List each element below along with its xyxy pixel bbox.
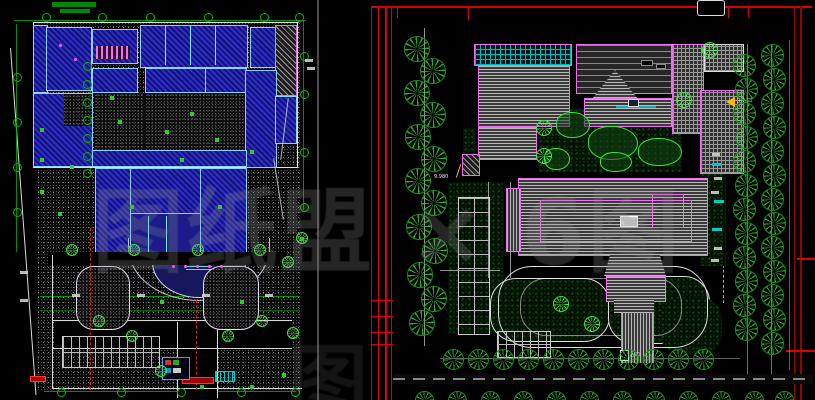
tree-icon bbox=[676, 92, 692, 108]
tree-icon bbox=[763, 212, 786, 235]
tree-icon bbox=[443, 349, 464, 370]
tree-icon bbox=[761, 92, 784, 115]
axis-bubble-icon bbox=[117, 388, 126, 397]
tree-icon bbox=[543, 349, 564, 370]
red-text-chip bbox=[30, 376, 46, 382]
tree-icon bbox=[547, 391, 566, 400]
tree-icon bbox=[405, 124, 431, 150]
tree-icon bbox=[613, 391, 632, 400]
dim-text-chip bbox=[72, 294, 80, 297]
green-annotation-mark bbox=[218, 205, 222, 209]
tree-icon bbox=[553, 296, 569, 312]
tree-icon bbox=[733, 150, 756, 173]
tree-icon bbox=[536, 120, 552, 136]
tree-icon bbox=[668, 349, 689, 370]
axis-bubble-icon bbox=[83, 152, 92, 161]
tree-icon bbox=[421, 286, 447, 312]
axis-bubble-icon bbox=[13, 73, 22, 82]
tree-icon bbox=[448, 391, 467, 400]
green-annotation-mark bbox=[215, 138, 219, 142]
green-annotation-mark bbox=[300, 237, 304, 241]
tree-icon bbox=[733, 54, 756, 77]
cyan-label-chip bbox=[714, 200, 724, 203]
tree-icon bbox=[514, 391, 533, 400]
tree-icon bbox=[735, 270, 758, 293]
column-dot bbox=[220, 265, 223, 268]
tree-icon bbox=[735, 174, 758, 197]
green-text-chip bbox=[60, 9, 90, 13]
tree-icon bbox=[404, 36, 430, 62]
tree-icon bbox=[745, 391, 764, 400]
decor-layer bbox=[0, 0, 815, 400]
tree-icon bbox=[420, 58, 446, 84]
cyan-label-chip bbox=[712, 228, 722, 231]
green-annotation-mark bbox=[40, 190, 44, 194]
tree-icon bbox=[518, 349, 539, 370]
cyan-label-chip bbox=[712, 163, 722, 166]
green-annotation-mark bbox=[110, 96, 114, 100]
green-annotation-mark bbox=[160, 300, 164, 304]
green-annotation-mark bbox=[118, 120, 122, 124]
column-dot bbox=[59, 44, 62, 47]
dim-text-chip bbox=[265, 294, 273, 297]
tree-icon bbox=[421, 146, 447, 172]
tree-icon bbox=[93, 315, 105, 327]
axis-bubble-icon bbox=[13, 208, 22, 217]
tree-icon bbox=[733, 102, 756, 125]
dim-text-chip bbox=[711, 191, 719, 194]
tree-icon bbox=[763, 164, 786, 187]
axis-bubble-icon bbox=[83, 134, 92, 143]
tree-icon bbox=[155, 365, 167, 377]
axis-bubble-icon bbox=[13, 118, 22, 127]
tree-icon bbox=[733, 294, 756, 317]
tree-icon bbox=[735, 222, 758, 245]
dim-text-chip bbox=[714, 247, 722, 250]
tree-icon bbox=[646, 391, 665, 400]
cad-sheet: 主入口 入口 9.980 图纸盟 × 6图 图 bbox=[0, 0, 815, 400]
green-annotation-mark bbox=[250, 385, 254, 389]
axis-bubble-icon bbox=[177, 388, 186, 397]
tree-icon bbox=[733, 198, 756, 221]
dim-text-chip bbox=[20, 299, 28, 302]
axis-bubble-icon bbox=[300, 90, 309, 99]
dim-text-chip bbox=[712, 153, 720, 156]
axis-bubble-icon bbox=[83, 169, 92, 178]
tree-icon bbox=[222, 330, 234, 342]
axis-bubble-icon bbox=[291, 388, 300, 397]
tree-icon bbox=[468, 349, 489, 370]
tree-icon bbox=[287, 327, 299, 339]
green-annotation-mark bbox=[240, 300, 244, 304]
tree-icon bbox=[761, 284, 784, 307]
axis-bubble-icon bbox=[13, 163, 22, 172]
tree-icon bbox=[643, 349, 664, 370]
tree-icon bbox=[66, 244, 78, 256]
column-dot bbox=[208, 265, 211, 268]
green-text-chip bbox=[52, 2, 96, 7]
green-annotation-mark bbox=[130, 205, 134, 209]
dim-text-chip bbox=[137, 294, 145, 297]
tree-icon bbox=[254, 244, 266, 256]
column-dot bbox=[196, 265, 199, 268]
tree-icon bbox=[761, 236, 784, 259]
green-annotation-mark bbox=[40, 158, 44, 162]
tree-icon bbox=[409, 310, 435, 336]
tree-icon bbox=[761, 44, 784, 67]
tree-icon bbox=[256, 315, 268, 327]
tree-icon bbox=[761, 140, 784, 163]
axis-bubble-icon bbox=[237, 388, 246, 397]
axis-bubble-icon bbox=[204, 13, 213, 22]
axis-bubble-icon bbox=[260, 13, 269, 22]
tree-icon bbox=[763, 308, 786, 331]
tree-icon bbox=[282, 256, 294, 268]
green-annotation-mark bbox=[70, 165, 74, 169]
tree-icon bbox=[126, 330, 138, 342]
axis-bubble-icon bbox=[57, 388, 66, 397]
tree-icon bbox=[693, 349, 714, 370]
tree-icon bbox=[415, 391, 434, 400]
tree-icon bbox=[406, 214, 432, 240]
green-annotation-mark bbox=[282, 373, 286, 377]
tree-icon bbox=[702, 42, 718, 58]
column-dot bbox=[74, 58, 77, 61]
tree-icon bbox=[679, 391, 698, 400]
tree-icon bbox=[405, 168, 431, 194]
green-annotation-mark bbox=[200, 385, 204, 389]
tree-icon bbox=[735, 318, 758, 341]
dim-text-chip bbox=[711, 259, 719, 262]
axis-bubble-icon bbox=[300, 203, 309, 212]
tree-icon bbox=[481, 391, 500, 400]
tree-icon bbox=[128, 244, 140, 256]
green-annotation-mark bbox=[180, 158, 184, 162]
tree-icon bbox=[763, 260, 786, 283]
green-annotation-mark bbox=[40, 128, 44, 132]
tree-icon bbox=[775, 391, 794, 400]
tree-icon bbox=[712, 391, 731, 400]
dim-text-chip bbox=[714, 177, 722, 180]
axis-bubble-icon bbox=[295, 13, 304, 22]
tree-icon bbox=[733, 246, 756, 269]
axis-bubble-icon bbox=[146, 13, 155, 22]
green-annotation-mark bbox=[58, 212, 62, 216]
tree-icon bbox=[493, 349, 514, 370]
tree-icon bbox=[407, 262, 433, 288]
tree-icon bbox=[618, 349, 639, 370]
green-annotation-mark bbox=[250, 150, 254, 154]
dim-text-chip bbox=[307, 67, 315, 70]
axis-bubble-icon bbox=[83, 80, 92, 89]
axis-bubble-icon bbox=[300, 148, 309, 157]
green-annotation-mark bbox=[165, 130, 169, 134]
axis-bubble-icon bbox=[83, 62, 92, 71]
axis-bubble-icon bbox=[98, 13, 107, 22]
column-dot bbox=[172, 265, 175, 268]
tree-icon bbox=[420, 102, 446, 128]
dim-text-chip bbox=[202, 294, 210, 297]
tree-icon bbox=[735, 78, 758, 101]
tree-icon bbox=[580, 391, 599, 400]
tree-icon bbox=[568, 349, 589, 370]
tree-icon bbox=[735, 126, 758, 149]
tree-icon bbox=[763, 68, 786, 91]
axis-bubble-icon bbox=[83, 116, 92, 125]
axis-bubble-icon bbox=[42, 13, 51, 22]
tree-icon bbox=[422, 238, 448, 264]
dim-text-chip bbox=[20, 271, 28, 274]
tree-icon bbox=[763, 116, 786, 139]
dim-text-chip bbox=[305, 59, 313, 62]
tree-icon bbox=[192, 244, 204, 256]
tree-icon bbox=[536, 148, 552, 164]
tree-icon bbox=[761, 188, 784, 211]
tree-icon bbox=[761, 332, 784, 355]
tree-icon bbox=[404, 80, 430, 106]
tree-icon bbox=[593, 349, 614, 370]
tree-icon bbox=[584, 316, 600, 332]
green-annotation-mark bbox=[190, 112, 194, 116]
axis-bubble-icon bbox=[83, 98, 92, 107]
column-dot bbox=[184, 265, 187, 268]
tree-icon bbox=[421, 190, 447, 216]
